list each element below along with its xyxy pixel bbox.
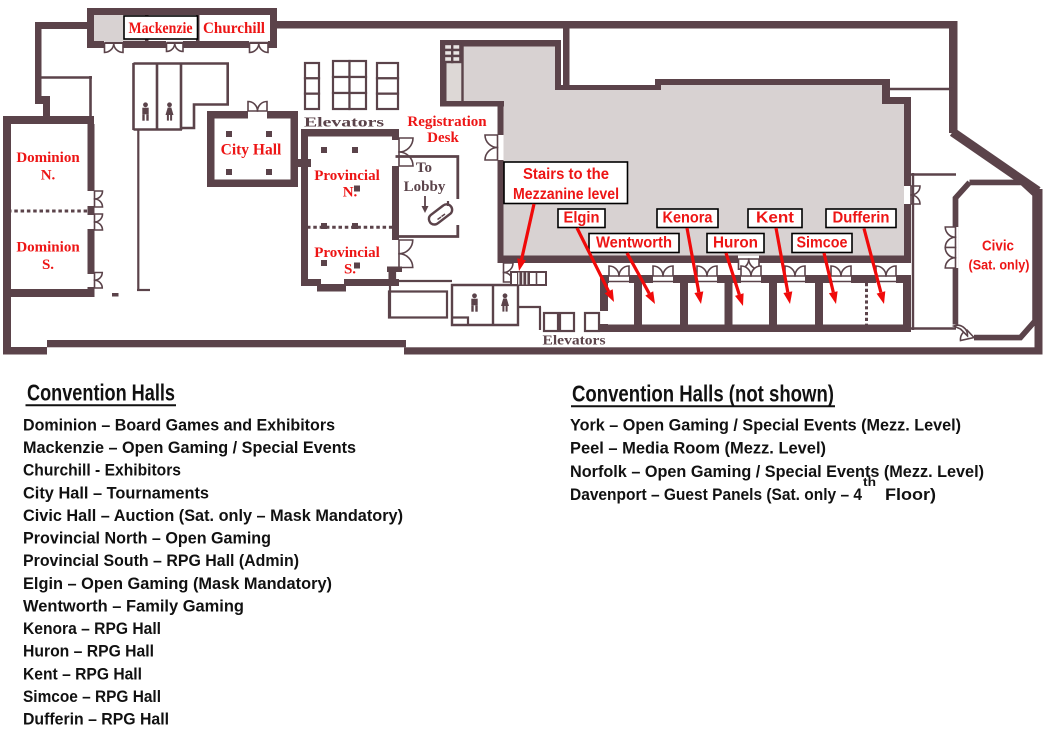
svg-text:Elgin: Elgin [564,210,600,227]
svg-text:Peel – Media Room (Mezz. Level: Peel – Media Room (Mezz. Level) [570,439,826,458]
svg-text:Dominion: Dominion [16,240,80,256]
svg-text:Dominion – Board Games and Exh: Dominion – Board Games and Exhibitors [23,416,335,435]
svg-text:th: th [863,477,876,489]
svg-text:Elgin – Open Gaming (Mask Mand: Elgin – Open Gaming (Mask Mandatory) [23,574,332,593]
svg-text:Huron: Huron [713,235,758,252]
svg-text:Norfolk – Open Gaming / Specia: Norfolk – Open Gaming / Special Events (… [570,462,984,481]
svg-text:Lobby: Lobby [404,179,446,195]
svg-text:Simcoe – RPG Hall: Simcoe – RPG Hall [23,687,161,706]
svg-text:City Hall: City Hall [221,142,282,159]
svg-text:Elevators: Elevators [304,116,385,131]
svg-text:S.: S. [344,262,356,278]
svg-text:City Hall – Tournaments: City Hall – Tournaments [23,483,209,502]
svg-text:Wentworth – Family Gaming: Wentworth – Family Gaming [23,596,244,615]
svg-text:Simcoe: Simcoe [797,235,848,252]
svg-text:Davenport – Guest Panels (Sat.: Davenport – Guest Panels (Sat. only – 4 [570,485,862,504]
svg-text:Provincial: Provincial [314,245,380,261]
svg-text:Churchill - Exhibitors: Churchill - Exhibitors [23,461,181,480]
svg-text:Wentworth: Wentworth [596,235,672,252]
svg-text:N.: N. [343,185,358,201]
svg-text:Dominion: Dominion [16,150,80,166]
svg-text:Elevators: Elevators [543,333,606,348]
svg-text:Mezzanine level: Mezzanine level [513,186,619,203]
svg-text:Dufferin: Dufferin [833,210,890,227]
svg-text:Desk: Desk [427,130,459,146]
svg-text:Civic: Civic [982,239,1014,255]
svg-text:Provincial: Provincial [314,168,380,184]
svg-text:To: To [416,160,432,176]
svg-text:Mackenzie: Mackenzie [129,20,193,37]
svg-text:Mackenzie – Open Gaming / Spec: Mackenzie – Open Gaming / Special Events [23,438,356,457]
svg-text:Civic Hall – Auction (Sat. onl: Civic Hall – Auction (Sat. only – Mask M… [23,506,403,525]
svg-text:Kent: Kent [756,210,794,227]
svg-text:Huron – RPG Hall: Huron – RPG Hall [23,642,154,661]
svg-text:York – Open Gaming / Special E: York – Open Gaming / Special Events (Mez… [570,415,961,434]
svg-text:Stairs to the: Stairs to the [523,166,609,183]
svg-text:Kenora – RPG Hall: Kenora – RPG Hall [23,619,161,638]
svg-text:N.: N. [41,168,56,184]
svg-text:Provincial North – Open Gaming: Provincial North – Open Gaming [23,529,271,548]
svg-text:Kenora: Kenora [663,210,713,227]
svg-text:Floor): Floor) [885,485,936,504]
svg-text:(Sat. only): (Sat. only) [969,258,1030,273]
svg-text:Registration: Registration [407,114,487,130]
svg-text:Dufferin – RPG Hall: Dufferin – RPG Hall [23,710,169,729]
svg-text:Kent – RPG Hall: Kent – RPG Hall [23,664,142,683]
svg-text:S.: S. [42,257,54,273]
svg-text:Provincial South – RPG Hall (A: Provincial South – RPG Hall (Admin) [23,551,299,570]
svg-text:Churchill: Churchill [203,20,266,37]
svg-text:Convention Halls (not shown): Convention Halls (not shown) [572,381,834,407]
svg-text:Convention Halls: Convention Halls [27,380,175,406]
